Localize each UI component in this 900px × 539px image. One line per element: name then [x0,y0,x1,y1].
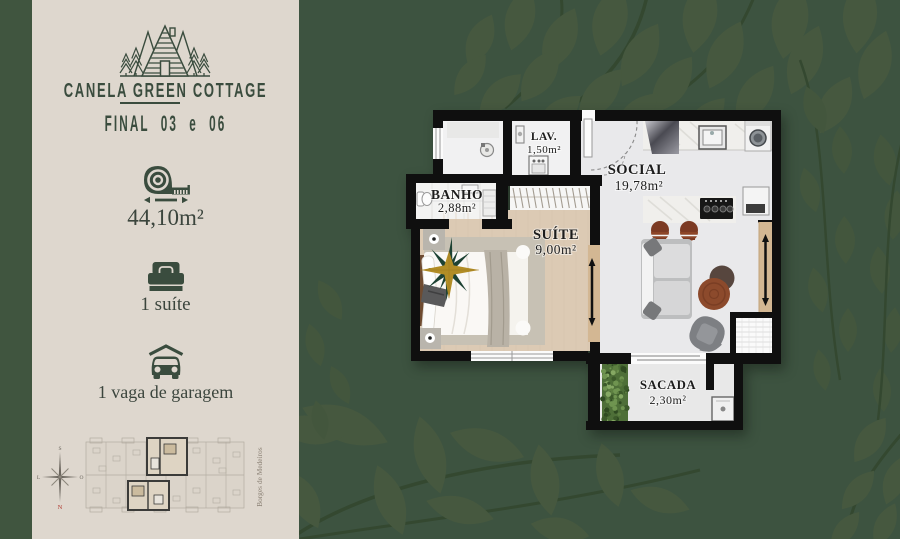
svg-text:SOCIAL: SOCIAL [608,162,667,178]
svg-text:2,88m²: 2,88m² [438,201,476,215]
svg-text:9,00m²: 9,00m² [535,242,576,257]
svg-text:O: O [80,475,84,481]
svg-text:L: L [37,475,41,481]
svg-text:SACADA: SACADA [640,378,697,392]
svg-text:BANHO: BANHO [431,187,483,202]
svg-text:SUÍTE: SUÍTE [533,226,579,243]
svg-text:LAV.: LAV. [531,131,557,143]
svg-text:N: N [58,504,63,511]
svg-text:S: S [58,446,61,452]
svg-text:19,78m²: 19,78m² [615,178,663,193]
svg-text:Borges de Medeiros: Borges de Medeiros [256,447,264,507]
svg-text:1,50m²: 1,50m² [527,144,561,156]
svg-text:2,30m²: 2,30m² [650,393,687,407]
